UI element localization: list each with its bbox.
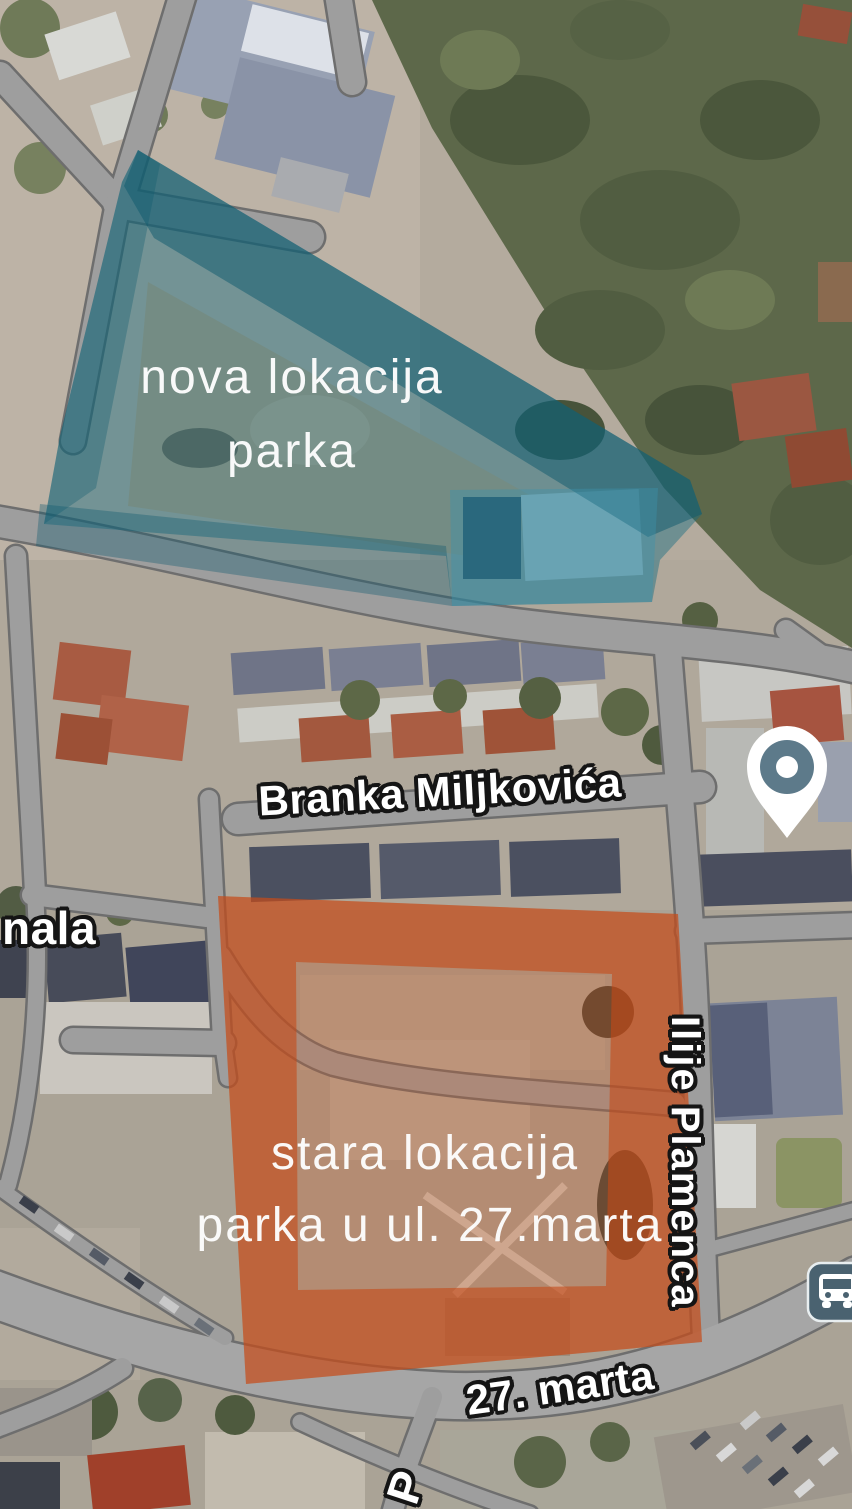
bus-stop-icon[interactable] [808, 1263, 852, 1321]
map-canvas[interactable]: nova lokacija parka stara lokacija parka… [0, 0, 852, 1509]
street-label-ilije-plamenca: Ilije Plamenca [662, 1016, 707, 1309]
street-label-partial-nala: nala [2, 901, 96, 955]
satellite-map-image [0, 0, 852, 1509]
old-park-overlay [218, 896, 702, 1384]
